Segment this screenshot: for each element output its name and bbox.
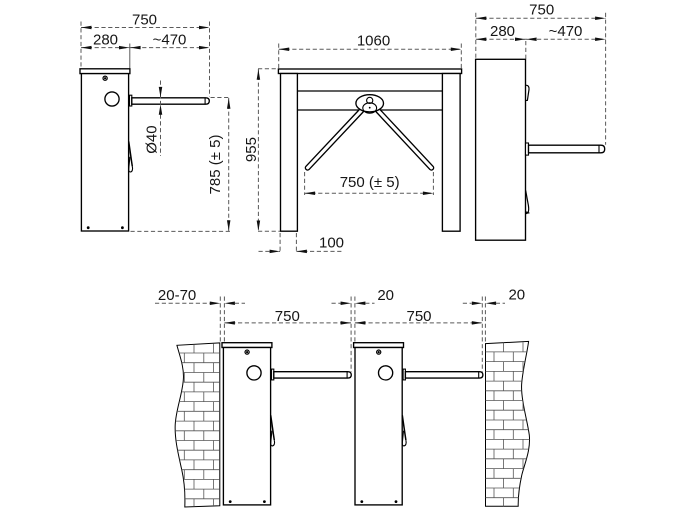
- svg-text:100: 100: [319, 234, 344, 251]
- svg-text:750 (± 5): 750 (± 5): [340, 174, 400, 191]
- svg-text:280: 280: [93, 31, 118, 48]
- svg-text:280: 280: [490, 23, 515, 40]
- svg-text:785 (± 5): 785 (± 5): [207, 135, 224, 195]
- svg-text:20-70: 20-70: [158, 287, 196, 304]
- svg-text:20: 20: [377, 287, 394, 304]
- svg-text:20: 20: [508, 286, 525, 303]
- svg-text:1060: 1060: [357, 32, 390, 49]
- svg-text:750: 750: [529, 2, 554, 19]
- svg-text:Ø40: Ø40: [143, 125, 160, 153]
- svg-text:750: 750: [132, 11, 157, 28]
- svg-text:~470: ~470: [549, 23, 583, 40]
- svg-text:~470: ~470: [153, 31, 187, 48]
- svg-text:955: 955: [243, 137, 260, 162]
